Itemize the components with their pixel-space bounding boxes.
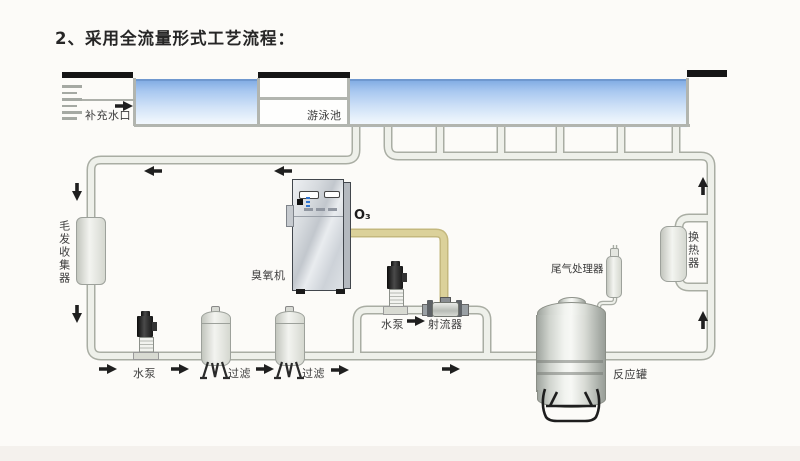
flow-arrow-icon [99,364,117,374]
process-flow-diagram: 2、采用全流量形式工艺流程： [0,0,800,461]
filter-legs [200,362,304,378]
reaction-tank-label: 反应罐 [613,369,648,382]
page-bottom-strip [0,446,800,461]
flow-arrow-icon [171,364,189,374]
flow-arrow-icon [144,166,162,176]
makeup-inlet-label: 补充水口 [85,110,131,123]
ozone-gas-label: O₃ [354,208,371,223]
flow-arrow-icon [274,166,292,176]
heat-exchanger-label: 换热器 [686,231,699,270]
jet-injector-label: 射流器 [428,319,463,332]
flow-arrow-icon [331,365,349,375]
flow-arrow-icon [256,364,274,374]
hair-collector-label: 毛发收集器 [57,220,70,285]
filter-1-label: 过滤 [228,368,251,381]
flow-arrow-icon [72,305,82,323]
ozone-generator-label: 臭氧机 [251,270,286,283]
swimming-pool-label: 游泳池 [307,110,342,123]
tail-gas-processor-label: 尾气处理器 [551,263,604,275]
flow-arrow-icon [407,316,425,326]
flow-arrow-icon [442,364,460,374]
flow-arrow-icon [698,177,708,195]
diagram-overlay [0,0,800,461]
flow-arrow-icon [698,311,708,329]
flow-arrow-icon [72,183,82,201]
main-pump-label: 水泵 [133,368,156,381]
booster-pump-label: 水泵 [381,319,404,332]
reaction-tank-stand [543,389,599,421]
filter-2-label: 过滤 [302,368,325,381]
